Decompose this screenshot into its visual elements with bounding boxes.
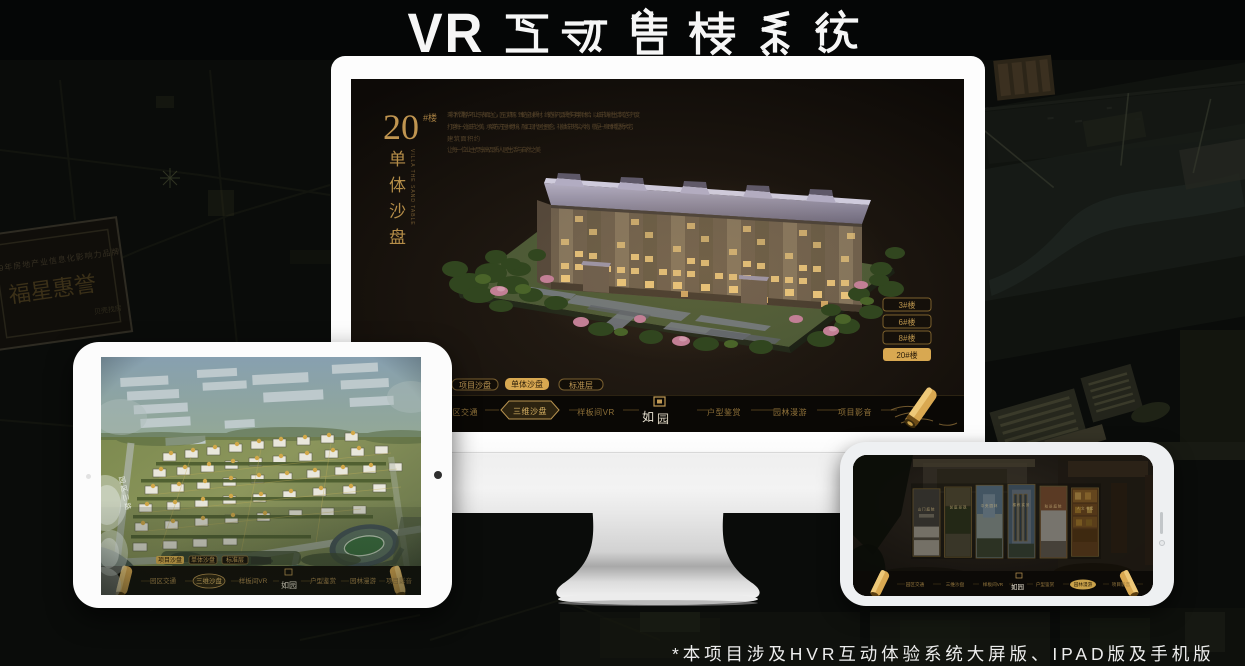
svg-text:人 文 书 房: 人 文 书 房 xyxy=(1077,506,1095,511)
svg-text:20#楼: 20#楼 xyxy=(896,350,917,360)
svg-text:秋 景 庭 院: 秋 景 庭 院 xyxy=(1045,504,1063,509)
svg-text:沙: 沙 xyxy=(389,202,406,221)
svg-text:8#楼: 8#楼 xyxy=(899,333,916,343)
svg-text:单体沙盘: 单体沙盘 xyxy=(511,379,543,389)
svg-text:体: 体 xyxy=(389,176,406,195)
svg-text:让每一位业主尽享高品质人居生活与自然之美: 让每一位业主尽享高品质人居生活与自然之美 xyxy=(447,146,541,154)
svg-text:项目影音: 项目影音 xyxy=(838,407,872,417)
svg-text:项目沙盘: 项目沙盘 xyxy=(459,380,491,390)
svg-text:山 门 庭 院: 山 门 庭 院 xyxy=(918,507,936,512)
svg-text:户型鉴赏: 户型鉴赏 xyxy=(707,407,741,417)
svg-text:前 庭 景 观: 前 庭 景 观 xyxy=(950,505,968,510)
svg-text:园林漫游: 园林漫游 xyxy=(1074,581,1093,588)
svg-text:园林漫游: 园林漫游 xyxy=(773,407,807,417)
svg-text:三维沙盘: 三维沙盘 xyxy=(513,406,547,416)
svg-text:样板间VR: 样板间VR xyxy=(577,407,615,417)
svg-text:如园: 如园 xyxy=(1011,582,1024,591)
svg-text:#楼: #楼 xyxy=(423,112,437,123)
svg-text:项目影音: 项目影音 xyxy=(1112,581,1131,588)
svg-text:样板间VR: 样板间VR xyxy=(983,581,1004,588)
svg-text:中 央 园 林: 中 央 园 林 xyxy=(981,503,999,508)
svg-text:VILLA THE SAND TABLE: VILLA THE SAND TABLE xyxy=(409,149,415,226)
svg-text:户型鉴赏: 户型鉴赏 xyxy=(1036,581,1055,588)
svg-text:如: 如 xyxy=(642,409,654,424)
svg-text:3#楼: 3#楼 xyxy=(899,300,916,310)
svg-text:盘: 盘 xyxy=(389,228,406,247)
svg-text:楼 栋 实 景: 楼 栋 实 景 xyxy=(1013,502,1031,507)
svg-text:VR: VR xyxy=(408,6,485,58)
svg-text:秉持所谓奢华不止于表面之心，匠心精琢，臻选全球质材，缔造非凡: 秉持所谓奢华不止于表面之心，匠心精琢，臻选全球质材，缔造非凡品质感与尊崇体验，以… xyxy=(447,111,640,119)
svg-text:建筑面积约: 建筑面积约 xyxy=(447,135,480,143)
svg-text:20: 20 xyxy=(383,107,419,147)
svg-text:标准层: 标准层 xyxy=(569,380,593,390)
svg-text:6#楼: 6#楼 xyxy=(899,317,916,327)
svg-text:单: 单 xyxy=(389,150,406,169)
svg-text:园: 园 xyxy=(657,412,669,426)
svg-text:打磨每一处细节之美，承袭东方园林意境，融汇现代居住理念，礼献: 打磨每一处细节之美，承袭东方园林意境，融汇现代居住理念，礼献城市塔尖人物，敬呈一… xyxy=(447,123,637,131)
svg-text:三维沙盘: 三维沙盘 xyxy=(946,581,965,588)
svg-text:园区交通: 园区交通 xyxy=(906,581,925,588)
